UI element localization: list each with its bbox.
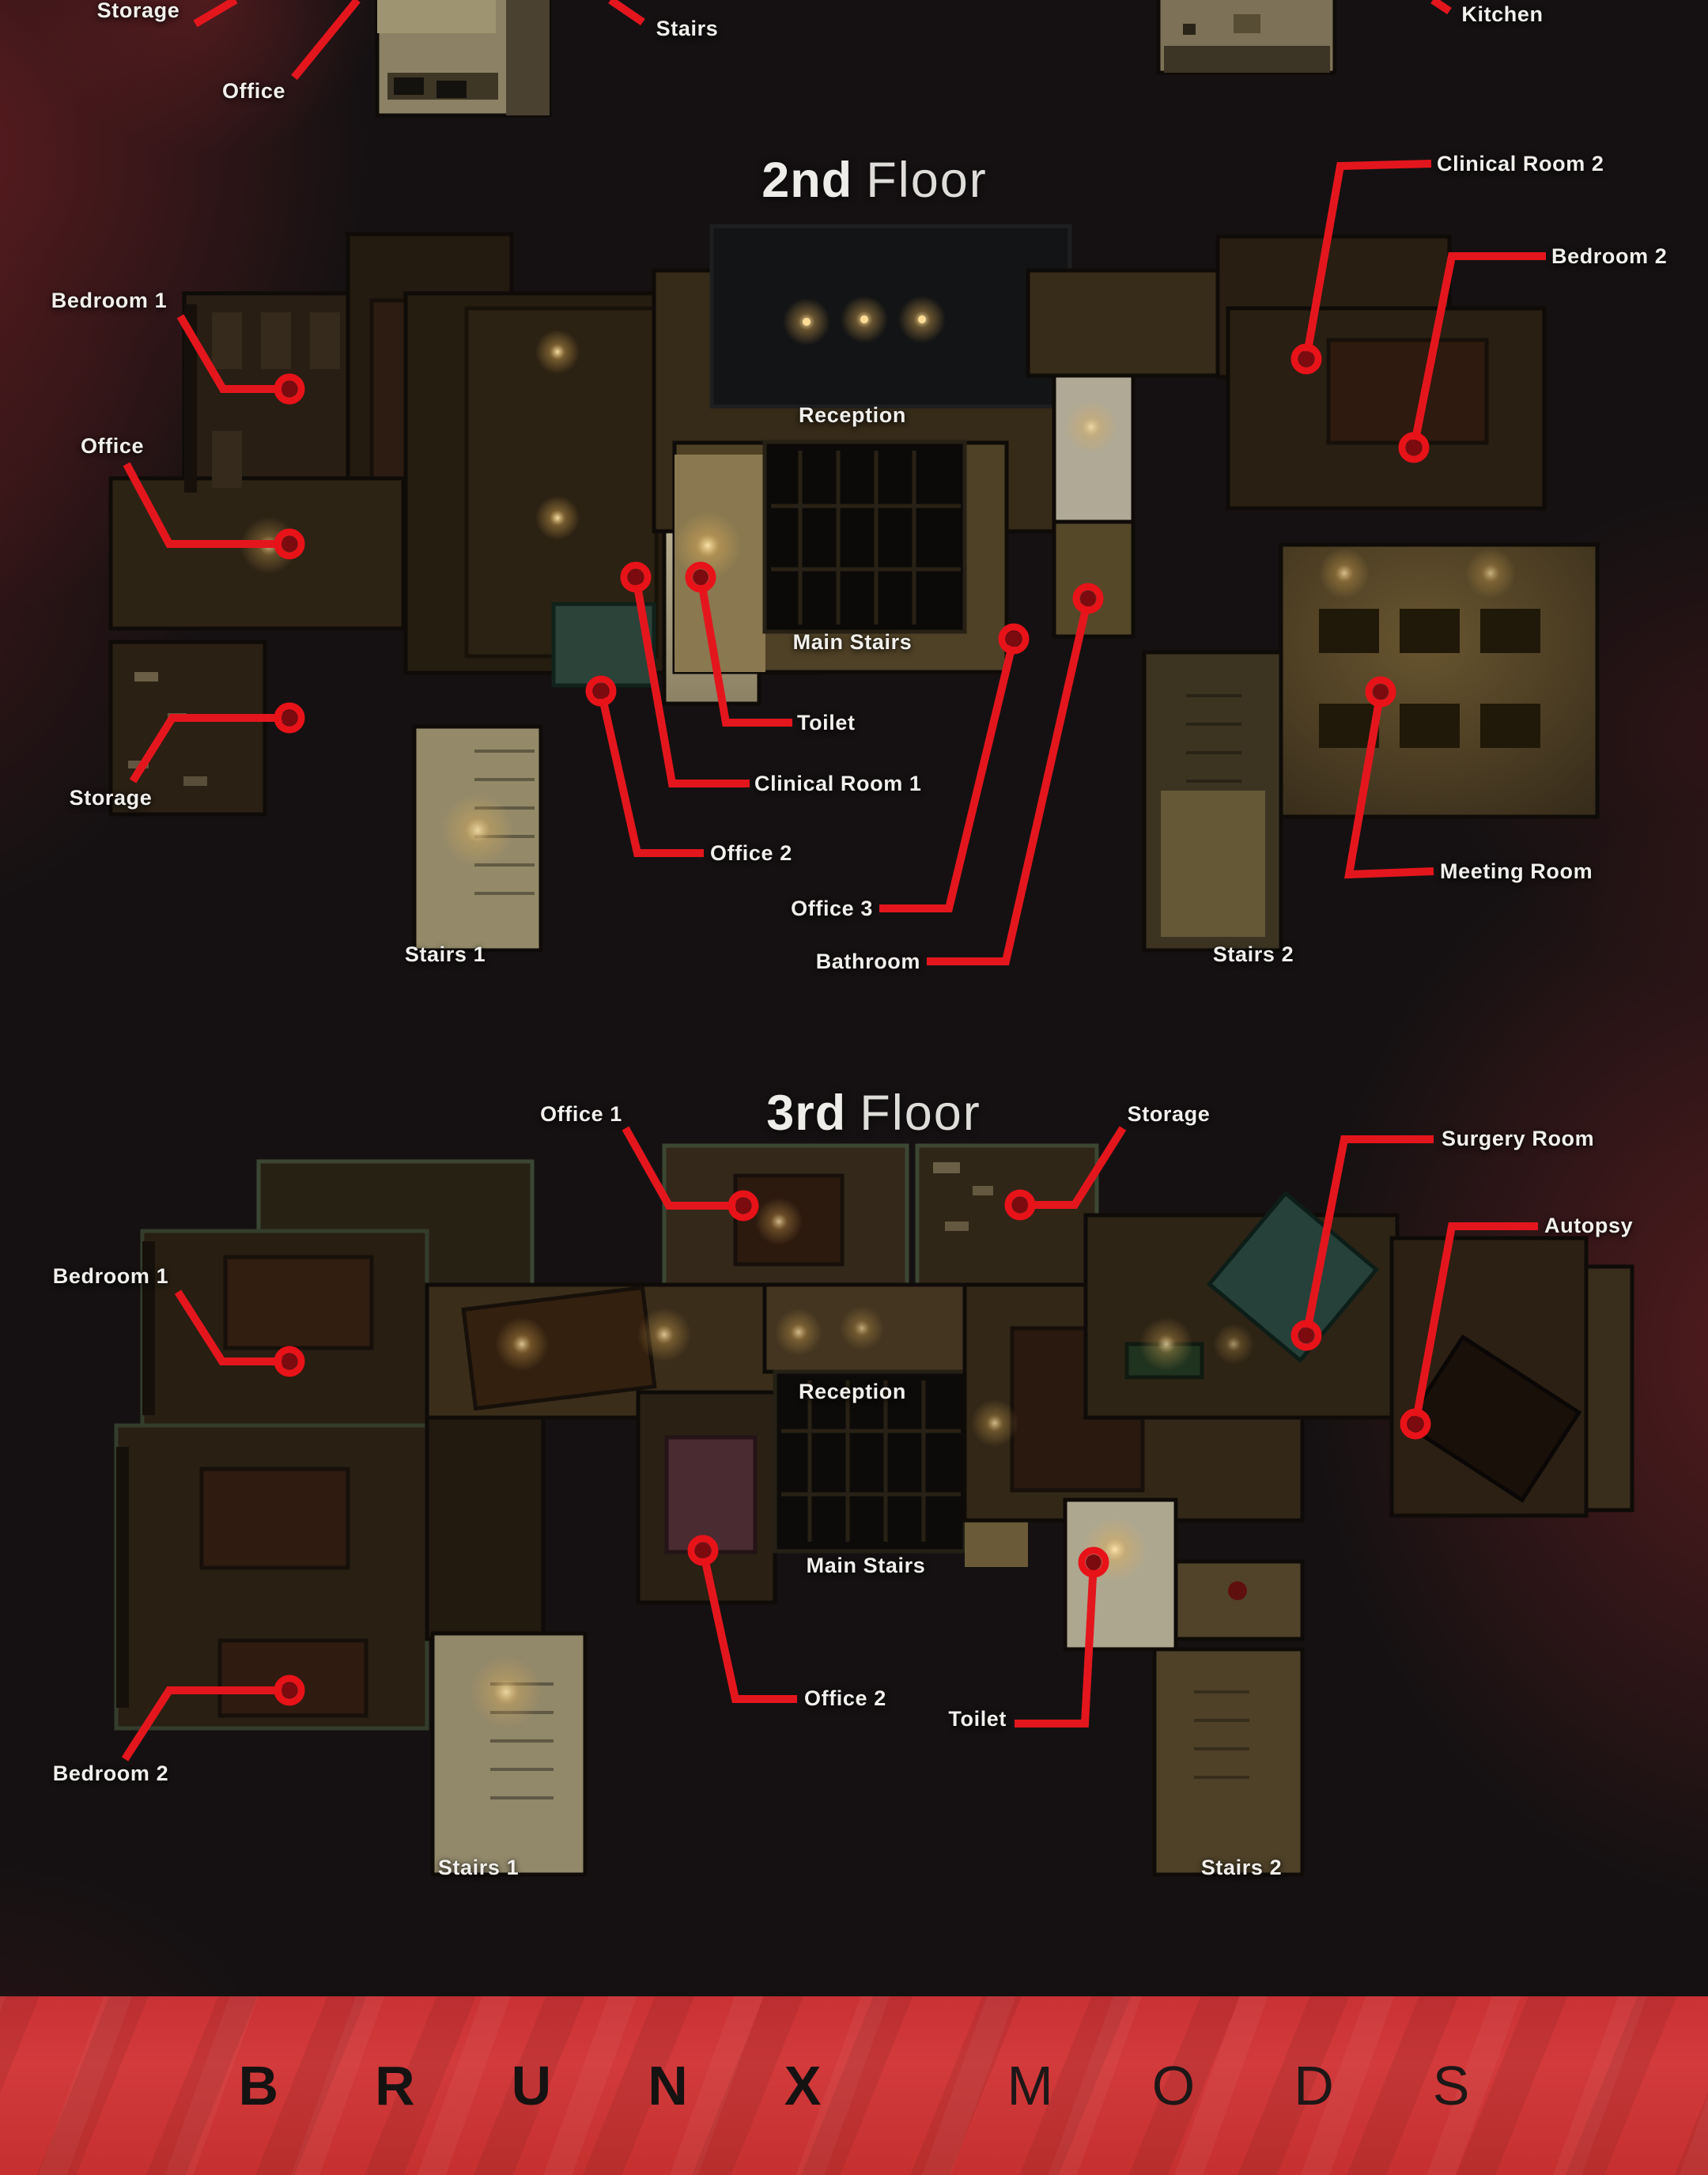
connector-top-stairs — [610, 0, 643, 22]
label-f2-toilet: Toilet — [797, 710, 856, 735]
label-f2-reception: Reception — [799, 402, 906, 428]
marker-f2-toilet — [689, 565, 712, 589]
marker-f3-office2 — [691, 1539, 715, 1562]
marker-f3-toilet — [1082, 1550, 1105, 1574]
label-top-kitchen: Kitchen — [1461, 2, 1543, 27]
first-floor-fragment-kitchen — [1158, 0, 1335, 73]
marker-f3-bedroom1 — [278, 1350, 301, 1373]
label-f2-main-stairs: Main Stairs — [793, 629, 913, 655]
marker-f2-bathroom — [1076, 587, 1100, 610]
label-f3-toilet: Toilet — [948, 1706, 1007, 1731]
label-f2-bedroom1: Bedroom 1 — [51, 288, 167, 313]
marker-f2-meeting — [1369, 680, 1392, 704]
label-f3-stairs1: Stairs 1 — [438, 1855, 519, 1880]
poster-canvas: Storage Office Stairs Kitchen 2nd Floor … — [0, 0, 1708, 2175]
marker-f2-office — [278, 532, 301, 556]
label-f2-meeting-room: Meeting Room — [1440, 859, 1593, 884]
label-f3-bedroom1: Bedroom 1 — [53, 1263, 168, 1289]
marker-f3-autopsy — [1404, 1412, 1427, 1436]
brand-banner: BRUNX MODS — [0, 1996, 1708, 2175]
marker-f2-storage — [278, 706, 301, 730]
label-f3-storage: Storage — [1128, 1101, 1211, 1127]
floor3-title-number: 3rd — [766, 1085, 846, 1142]
label-top-storage: Storage — [97, 0, 180, 23]
first-floor-fragment-stairs — [377, 0, 550, 115]
marker-f2-office2 — [589, 679, 613, 703]
label-f2-storage: Storage — [70, 785, 153, 810]
label-f3-surgery-room: Surgery Room — [1442, 1126, 1594, 1151]
marker-f3-office1 — [731, 1194, 755, 1218]
floor3-plan — [116, 1146, 1632, 1875]
marker-f2-bedroom1 — [278, 377, 301, 401]
connector-top-storage — [195, 0, 236, 24]
label-f2-clinical-room-1: Clinical Room 1 — [754, 771, 922, 796]
label-f2-office: Office — [81, 433, 144, 459]
label-f2-bedroom2: Bedroom 2 — [1551, 244, 1667, 269]
brand-name-light: MODS — [1007, 2054, 1568, 2117]
label-f2-office2: Office 2 — [710, 840, 792, 866]
marker-f3-storage — [1008, 1193, 1032, 1217]
connector-top-kitchen — [1433, 0, 1449, 11]
label-f3-bedroom2: Bedroom 2 — [53, 1761, 168, 1786]
label-f3-office2: Office 2 — [804, 1686, 886, 1711]
label-f3-stairs2: Stairs 2 — [1201, 1855, 1282, 1880]
label-f3-office1: Office 1 — [540, 1101, 622, 1127]
marker-f2-bedroom2 — [1402, 436, 1426, 459]
label-f3-main-stairs: Main Stairs — [807, 1553, 926, 1578]
connector-top-office — [294, 0, 357, 77]
floor3-title: 3rd Floor — [766, 1085, 981, 1142]
floor2-title-word: Floor — [866, 152, 988, 209]
marker-f2-clinical2 — [1294, 347, 1318, 371]
marker-f2-office3 — [1002, 627, 1026, 651]
label-f2-bathroom: Bathroom — [816, 949, 920, 974]
label-f2-office3: Office 3 — [791, 896, 873, 921]
label-f2-stairs1: Stairs 1 — [405, 942, 486, 967]
label-top-office: Office — [222, 78, 285, 104]
label-f3-reception: Reception — [799, 1379, 906, 1404]
label-f3-autopsy: Autopsy — [1544, 1213, 1633, 1238]
label-top-stairs: Stairs — [656, 16, 719, 41]
marker-f3-bedroom2 — [278, 1678, 301, 1702]
floor2-title-number: 2nd — [761, 152, 852, 209]
connector-f2-office2 — [601, 691, 704, 853]
brand-name-bold: BRUNX — [239, 2054, 918, 2117]
label-f2-clinical-room-2: Clinical Room 2 — [1437, 151, 1604, 176]
label-f2-stairs2: Stairs 2 — [1213, 942, 1294, 967]
floor3-title-word: Floor — [860, 1085, 981, 1142]
marker-f2-clinical1 — [624, 565, 648, 589]
floor2-title: 2nd Floor — [761, 152, 988, 209]
marker-f3-surgery — [1294, 1324, 1318, 1347]
